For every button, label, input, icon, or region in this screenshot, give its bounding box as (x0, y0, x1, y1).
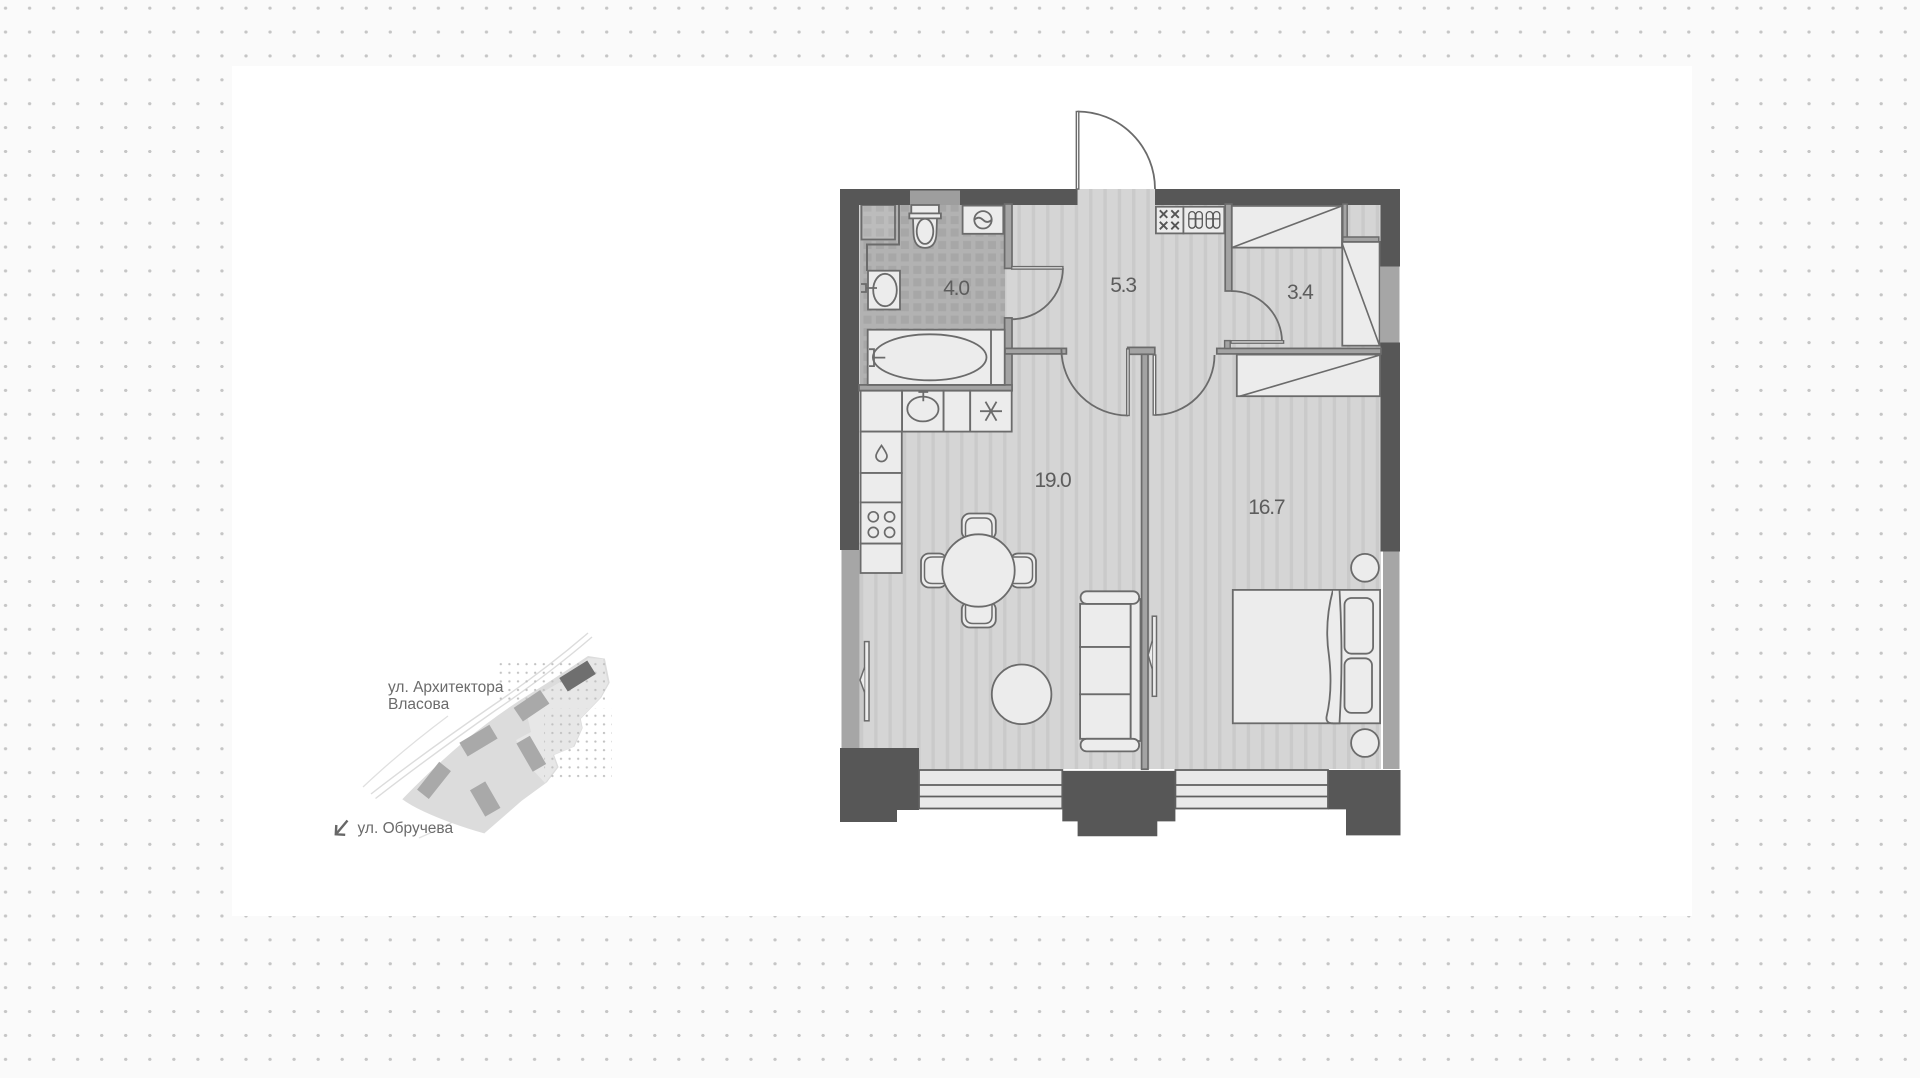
svg-text:ул. Обручева: ул. Обручева (358, 820, 454, 837)
svg-text:3.4: 3.4 (1287, 281, 1314, 304)
svg-text:ул. Архитектора: ул. Архитектора (388, 679, 504, 696)
svg-text:19.0: 19.0 (1034, 469, 1071, 492)
svg-text:5.3: 5.3 (1110, 274, 1136, 297)
svg-text:16.7: 16.7 (1248, 496, 1285, 519)
svg-text:Власова: Власова (388, 696, 450, 713)
svg-text:4.0: 4.0 (943, 277, 969, 300)
